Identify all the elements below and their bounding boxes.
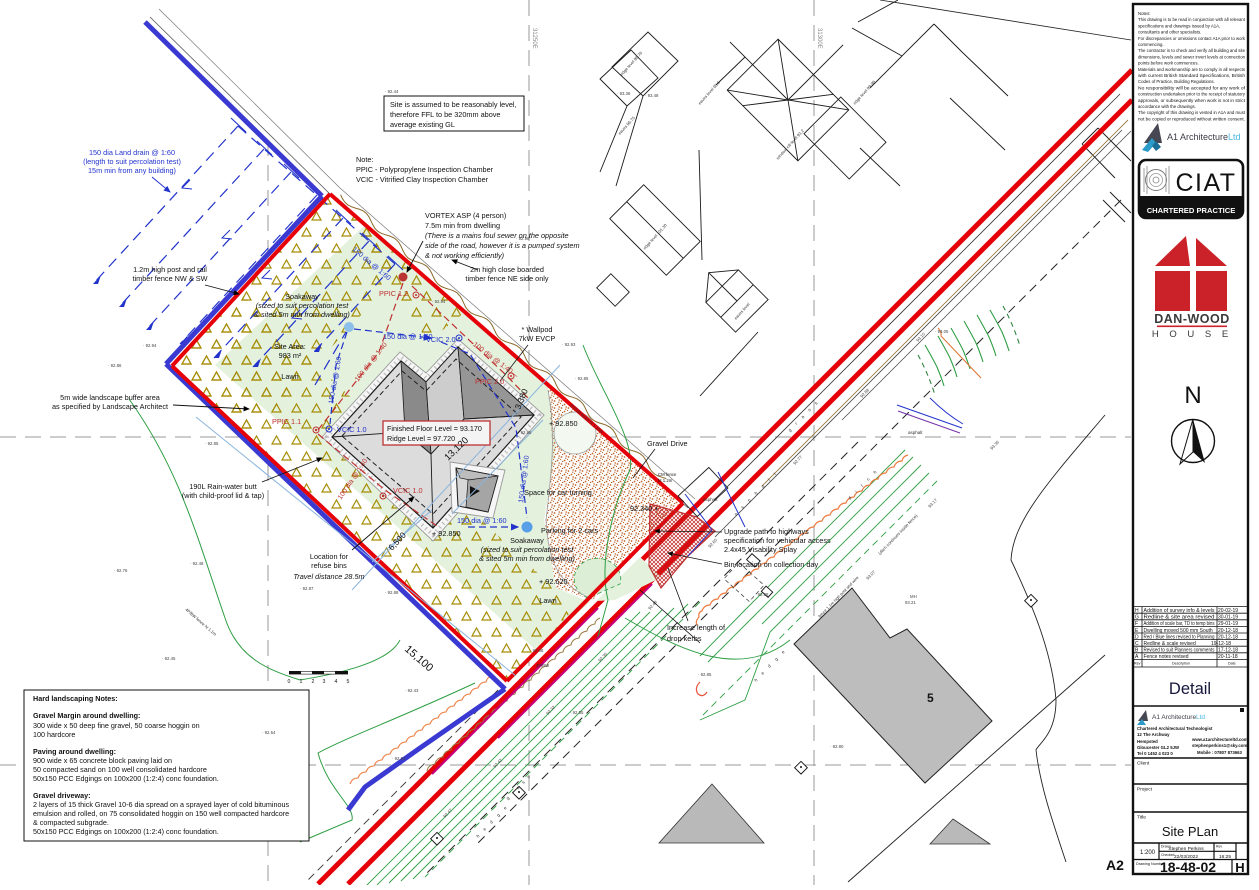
svg-text:CM fence: CM fence — [658, 472, 677, 477]
svg-text:H: H — [1135, 608, 1139, 614]
svg-text:The contractor is to check and: The contractor is to check and verify al… — [1138, 48, 1246, 53]
svg-text:5m wide landscape buffer area: 5m wide landscape buffer area — [60, 393, 161, 402]
svg-text:31300E: 31300E — [816, 28, 822, 49]
svg-text:+ 92.850: + 92.850 — [549, 419, 578, 428]
svg-text:points before work commences.: points before work commences. — [1138, 61, 1199, 66]
svg-text:Lawn: Lawn — [281, 372, 298, 381]
svg-text:(with child-proof lid & tap): (with child-proof lid & tap) — [182, 491, 264, 500]
svg-text:Travel distance 28.5m: Travel distance 28.5m — [293, 572, 364, 581]
svg-text:Paving around dwelling:: Paving around dwelling: — [33, 747, 116, 756]
svg-text:& sited 5m min from dwelling): & sited 5m min from dwelling) — [479, 554, 575, 563]
svg-text:Rev: Rev — [1216, 845, 1222, 849]
svg-text:· 92.86: · 92.86 — [108, 363, 122, 368]
svg-text:VCIC - Vitrified Clay Inspecti: VCIC - Vitrified Clay Inspection Chamber — [356, 175, 489, 184]
svg-text:Gloucester GL2 5JW: Gloucester GL2 5JW — [1137, 745, 1180, 750]
svg-text:H: H — [1235, 860, 1244, 875]
svg-text:19-12-18: 19-12-18 — [1211, 641, 1231, 647]
svg-text:drop kerbs: drop kerbs — [667, 634, 702, 643]
svg-text:PPIC - Polypropylene Inspectio: PPIC - Polypropylene Inspection Chamber — [356, 165, 494, 174]
svg-text:A1 Architecture: A1 Architecture — [1167, 132, 1228, 142]
svg-text:15m min from any building): 15m min from any building) — [88, 166, 176, 175]
svg-text:For discrepancies or omissions: For discrepancies or omissions contact A… — [1138, 36, 1246, 41]
svg-text:Notes:: Notes: — [1138, 11, 1150, 16]
svg-text:Ltd: Ltd — [1228, 132, 1241, 142]
svg-text:Redline & scale revised: Redline & scale revised — [1144, 641, 1196, 647]
svg-text:CIAT: CIAT — [1175, 169, 1236, 197]
svg-text:A2: A2 — [1106, 857, 1124, 873]
svg-text:Dwelling moved 500 mm South: Dwelling moved 500 mm South — [1144, 628, 1213, 634]
svg-text:asphalt: asphalt — [908, 430, 923, 435]
svg-text:150 dia Land drain @ 1:60: 150 dia Land drain @ 1:60 — [89, 148, 175, 157]
svg-text:A1 Architecture: A1 Architecture — [1152, 714, 1196, 721]
svg-text:(sized to suit percolation tes: (sized to suit percolation test — [256, 301, 349, 310]
svg-text:20-12-18: 20-12-18 — [1218, 634, 1238, 640]
svg-text:not be copied or reproduced wi: not be copied or reproduced without writ… — [1138, 116, 1245, 121]
svg-text:construction undertaken prior: construction undertaken prior to the rec… — [1138, 92, 1246, 97]
svg-text:300 wide x 50 deep fine gravel: 300 wide x 50 deep fine gravel, 50 coars… — [33, 721, 200, 730]
svg-text:Hard landscaping Notes:: Hard landscaping Notes: — [33, 694, 118, 703]
svg-text:Site Area:: Site Area: — [274, 342, 306, 351]
svg-text:Rev: Rev — [1134, 662, 1141, 666]
svg-text:& compacted subgrade.: & compacted subgrade. — [33, 818, 109, 827]
svg-text:31250E: 31250E — [531, 28, 537, 49]
svg-text:· 93.48: · 93.48 — [645, 93, 659, 98]
svg-text:· 93.05: · 93.05 — [935, 329, 949, 334]
svg-text:· 92.43: · 92.43 — [405, 688, 419, 693]
svg-text:900 wide x 65 concrete block p: 900 wide x 65 concrete block paving laid… — [33, 756, 172, 765]
svg-text:+ 92.850: + 92.850 — [432, 529, 461, 538]
svg-text:17-12-18: 17-12-18 — [1218, 648, 1238, 654]
svg-text:Soakaway: Soakaway — [510, 536, 544, 545]
svg-text:aspholt: aspholt — [703, 497, 718, 502]
svg-text:Red / Blue lines revised to Pl: Red / Blue lines revised to Planning — [1144, 634, 1215, 640]
svg-text:· 92.55: · 92.55 — [570, 710, 584, 715]
svg-text:Hempsted: Hempsted — [1137, 739, 1158, 744]
svg-text:VORTEX ASP (4 person): VORTEX ASP (4 person) — [425, 211, 506, 220]
svg-text:Description: Description — [1172, 662, 1190, 666]
svg-text:· 92.54: · 92.54 — [262, 730, 276, 735]
svg-text:100 hardcore: 100 hardcore — [33, 730, 75, 739]
svg-text:30-01-19: 30-01-19 — [1218, 615, 1238, 621]
svg-text:as specified by Landscape Arch: as specified by Landscape Architect — [52, 402, 168, 411]
svg-text:with current British Standard: with current British Standard Specificat… — [1138, 73, 1246, 78]
svg-text:4P/BW: 4P/BW — [536, 663, 549, 668]
svg-text:consultants and other speciali: consultants and other specialists. — [1138, 30, 1201, 35]
svg-text:dimensions, levels and sewer i: dimensions, levels and sewer invert leve… — [1138, 54, 1246, 59]
svg-text:& sited 5m min from dwelling): & sited 5m min from dwelling) — [254, 310, 350, 319]
svg-text:PPIC 1.1: PPIC 1.1 — [272, 417, 301, 426]
svg-text:20-12-18: 20-12-18 — [1218, 628, 1238, 634]
svg-text:timber fence NW & SW: timber fence NW & SW — [132, 274, 207, 283]
svg-text:* Wallpod: * Wallpod — [522, 325, 553, 334]
svg-text:5: 5 — [927, 691, 934, 705]
svg-text:Ltd: Ltd — [1196, 714, 1205, 721]
svg-text:1.2m high post and rail: 1.2m high post and rail — [133, 265, 207, 274]
svg-text:· 92.68: · 92.68 — [530, 648, 544, 653]
svg-text:Project: Project — [1137, 787, 1153, 793]
svg-text:(There is a mains foul sewer o: (There is a mains foul sewer on the oppo… — [425, 231, 569, 240]
svg-text:PPIC 1.2: PPIC 1.2 — [379, 289, 408, 298]
svg-text:Bin location on collection day: Bin location on collection day — [724, 560, 818, 569]
svg-text:2m high close boarded: 2m high close boarded — [470, 265, 544, 274]
svg-text:accordance with the drawings.: accordance with the drawings. — [1138, 104, 1196, 109]
svg-text:Addition of scale bar, TD to t: Addition of scale bar, TD to temp bins — [1144, 621, 1215, 627]
svg-text:· 92.98: · 92.98 — [516, 236, 530, 241]
svg-text:Finished Floor Level = 93.170: Finished Floor Level = 93.170 — [387, 424, 482, 433]
svg-text:1:200: 1:200 — [1140, 850, 1156, 856]
svg-text:1: 1 — [300, 679, 303, 685]
svg-text:DAN-WOOD: DAN-WOOD — [1154, 312, 1230, 326]
svg-text:5: 5 — [347, 679, 350, 685]
svg-text:Date: Date — [1228, 662, 1236, 666]
svg-text:Lawn: Lawn — [539, 596, 556, 605]
svg-text:(length to suit percolation te: (length to suit percolation test) — [83, 157, 181, 166]
svg-text:Gravel Drive: Gravel Drive — [647, 439, 688, 448]
svg-text:50 compacted sand on 100 well: 50 compacted sand on 100 well consolidat… — [33, 765, 207, 774]
svg-text:commencing.: commencing. — [1138, 42, 1164, 47]
svg-text:Stephen Perkins: Stephen Perkins — [1168, 846, 1204, 852]
svg-text:150 dia @ 1:60: 150 dia @ 1:60 — [383, 332, 433, 341]
svg-text:Addition of survey info & leve: Addition of survey info & levels — [1144, 608, 1216, 614]
svg-text:Codes of Practice, Building Re: Codes of Practice, Building Regulations. — [1138, 79, 1215, 84]
svg-text:The copyright of this drawing: The copyright of this drawing is vested … — [1138, 110, 1246, 115]
svg-text:· 93.36: · 93.36 — [617, 91, 631, 96]
svg-text:MH: MH — [910, 594, 917, 599]
svg-text:Client: Client — [1137, 761, 1150, 767]
svg-text:This drawing is to be read in: This drawing is to be read in conjunctio… — [1138, 17, 1246, 22]
svg-text:therefore FFL to be 320mm abov: therefore FFL to be 320mm above — [390, 110, 500, 119]
svg-text:Increase length of: Increase length of — [667, 623, 726, 632]
svg-text:stephenperkins1@sky.com: stephenperkins1@sky.com — [1192, 743, 1247, 748]
svg-text:· 92.85: · 92.85 — [575, 376, 589, 381]
svg-text:· 92.45: · 92.45 — [162, 656, 176, 661]
svg-text:approvals, or subsequently whe: approvals, or subsequently when work is … — [1138, 98, 1246, 103]
svg-text:Upgrade path to highways: Upgrade path to highways — [724, 527, 809, 536]
svg-text:No responsibility will be acce: No responsibility will be accepted for a… — [1138, 85, 1246, 90]
svg-text:C: C — [1135, 641, 1139, 647]
svg-text:· 92.94: · 92.94 — [143, 343, 157, 348]
svg-text:983 m²: 983 m² — [279, 351, 302, 360]
svg-text:· 92.80: · 92.80 — [830, 744, 844, 749]
svg-text:Fence notes revised: Fence notes revised — [1144, 654, 1189, 660]
svg-text:Chartered Architectural Techno: Chartered Architectural Technologist — [1137, 726, 1213, 731]
svg-text:150 dia @ 1:60: 150 dia @ 1:60 — [457, 516, 507, 525]
svg-text:Parking for 2 cars: Parking for 2 cars — [541, 526, 599, 535]
svg-text:specification for vehicular ac: specification for vehicular access — [724, 536, 831, 545]
svg-text:Detail: Detail — [1169, 680, 1211, 698]
svg-text:emulsion and rolled, on 75 con: emulsion and rolled, on 75 consolidated … — [33, 809, 289, 818]
svg-text:Revised to suit Planners comme: Revised to suit Planners comments — [1144, 648, 1215, 654]
svg-text:Mobile : 07807 873663: Mobile : 07807 873663 — [1197, 750, 1243, 755]
svg-text:190L Rain-water butt: 190L Rain-water butt — [189, 482, 256, 491]
svg-text:29-01-19: 29-01-19 — [1218, 621, 1238, 627]
svg-text:· 92.93: · 92.93 — [562, 342, 576, 347]
svg-text:VCIC 1.0: VCIC 1.0 — [393, 486, 423, 495]
svg-text:7kW EVCP: 7kW EVCP — [519, 334, 556, 343]
svg-text:· 92.86: · 92.86 — [518, 430, 532, 435]
svg-text:50x150 PCC Edgings on 100x200: 50x150 PCC Edgings on 100x200 (1:2:4) co… — [33, 827, 219, 836]
svg-text:7.5m min from dwelling: 7.5m min from dwelling — [425, 221, 500, 230]
svg-text:· 92.44: · 92.44 — [385, 89, 399, 94]
svg-text:12 The Archway: 12 The Archway — [1137, 732, 1170, 737]
svg-text:· 92.87: · 92.87 — [300, 586, 314, 591]
svg-text:PPIC 2.0: PPIC 2.0 — [475, 377, 504, 386]
svg-text:2.4x45 Visability Splay: 2.4x45 Visability Splay — [724, 545, 797, 554]
svg-text:Checked: Checked — [1161, 853, 1174, 857]
svg-text:Gravel Margin around dwelling:: Gravel Margin around dwelling: — [33, 711, 140, 720]
svg-text:Location for: Location for — [310, 552, 349, 561]
svg-text:Site PLan: Site PLan — [1162, 824, 1218, 839]
svg-text:Title: Title — [1137, 815, 1146, 821]
svg-text:20-11-18: 20-11-18 — [1218, 654, 1238, 660]
svg-text:timber fence NE side only: timber fence NE side only — [465, 274, 548, 283]
svg-text:· 92.54: · 92.54 — [392, 756, 406, 761]
svg-text:Space for car turning: Space for car turning — [524, 488, 592, 497]
svg-text:20-02-19: 20-02-19 — [1218, 608, 1238, 614]
svg-text:& not working efficiently): & not working efficiently) — [425, 251, 504, 260]
svg-text:G: G — [1135, 615, 1139, 621]
svg-text:50x150 PCC Edgings on 100x200: 50x150 PCC Edgings on 100x200 (1:2:4) co… — [33, 774, 219, 783]
svg-text:· 92.85: · 92.85 — [205, 441, 219, 446]
svg-text:Tel 0 1452 4 023 0: Tel 0 1452 4 023 0 — [1137, 751, 1173, 756]
svg-text:2: 2 — [312, 679, 315, 685]
svg-text:ht 1.2m: ht 1.2m — [658, 478, 673, 483]
svg-text:Note:: Note: — [356, 155, 373, 164]
svg-text:93.21: 93.21 — [905, 600, 916, 605]
svg-text:· 92.88: · 92.88 — [385, 590, 399, 595]
svg-text:VCIC 1.0: VCIC 1.0 — [337, 425, 367, 434]
svg-text:Gravel driveway:: Gravel driveway: — [33, 791, 91, 800]
svg-text:www.a1architectureltd.com: www.a1architectureltd.com — [1191, 737, 1248, 742]
svg-text:· 92.76: · 92.76 — [114, 568, 128, 573]
svg-text:· 92.94: · 92.94 — [432, 299, 446, 304]
svg-text:18-48-02: 18-48-02 — [1160, 859, 1216, 875]
svg-text:· 92.48: · 92.48 — [190, 561, 204, 566]
svg-text:D: D — [1135, 634, 1139, 640]
svg-text:N: N — [1184, 382, 1201, 409]
svg-text:· 92.88: · 92.88 — [755, 592, 769, 597]
svg-text:0: 0 — [288, 679, 291, 685]
svg-text:Site is assumed to be reasonab: Site is assumed to be reasonably level, — [390, 100, 517, 109]
svg-text:specifications and drawings is: specifications and drawings issued by A1… — [1138, 23, 1220, 28]
svg-text:side of the road, however it i: side of the road, however it is a pumped… — [425, 241, 580, 250]
svg-text:92.340 +: 92.340 + — [630, 504, 659, 513]
svg-text:3: 3 — [323, 679, 326, 685]
svg-text:H O U S E: H O U S E — [1152, 329, 1232, 340]
svg-text:2 layers of 15 thick Gravel 10: 2 layers of 15 thick Gravel 10-6 dia spr… — [33, 800, 289, 809]
svg-text:Ridge Level = 97.72: Ridge Level = 97.720 — [387, 434, 455, 443]
svg-text:16:25: 16:25 — [1219, 854, 1231, 860]
svg-text:average existing GL: average existing GL — [390, 120, 455, 129]
svg-text:F: F — [1135, 621, 1138, 627]
svg-text:CHARTERED PRACTICE: CHARTERED PRACTICE — [1147, 206, 1236, 215]
svg-text:· 92.85: · 92.85 — [698, 672, 712, 677]
svg-text:Materials and workmanship are: Materials and workmanship are to comply … — [1138, 67, 1245, 72]
svg-text:Soakaway: Soakaway — [285, 292, 319, 301]
svg-text:+ 92.620: + 92.620 — [539, 577, 568, 586]
svg-text:4: 4 — [335, 679, 338, 685]
svg-text:refuse bins: refuse bins — [311, 561, 347, 570]
svg-text:(sized to suit percolation tes: (sized to suit percolation test — [481, 545, 574, 554]
svg-text:Redline & site area revised: Redline & site area revised — [1144, 615, 1215, 621]
